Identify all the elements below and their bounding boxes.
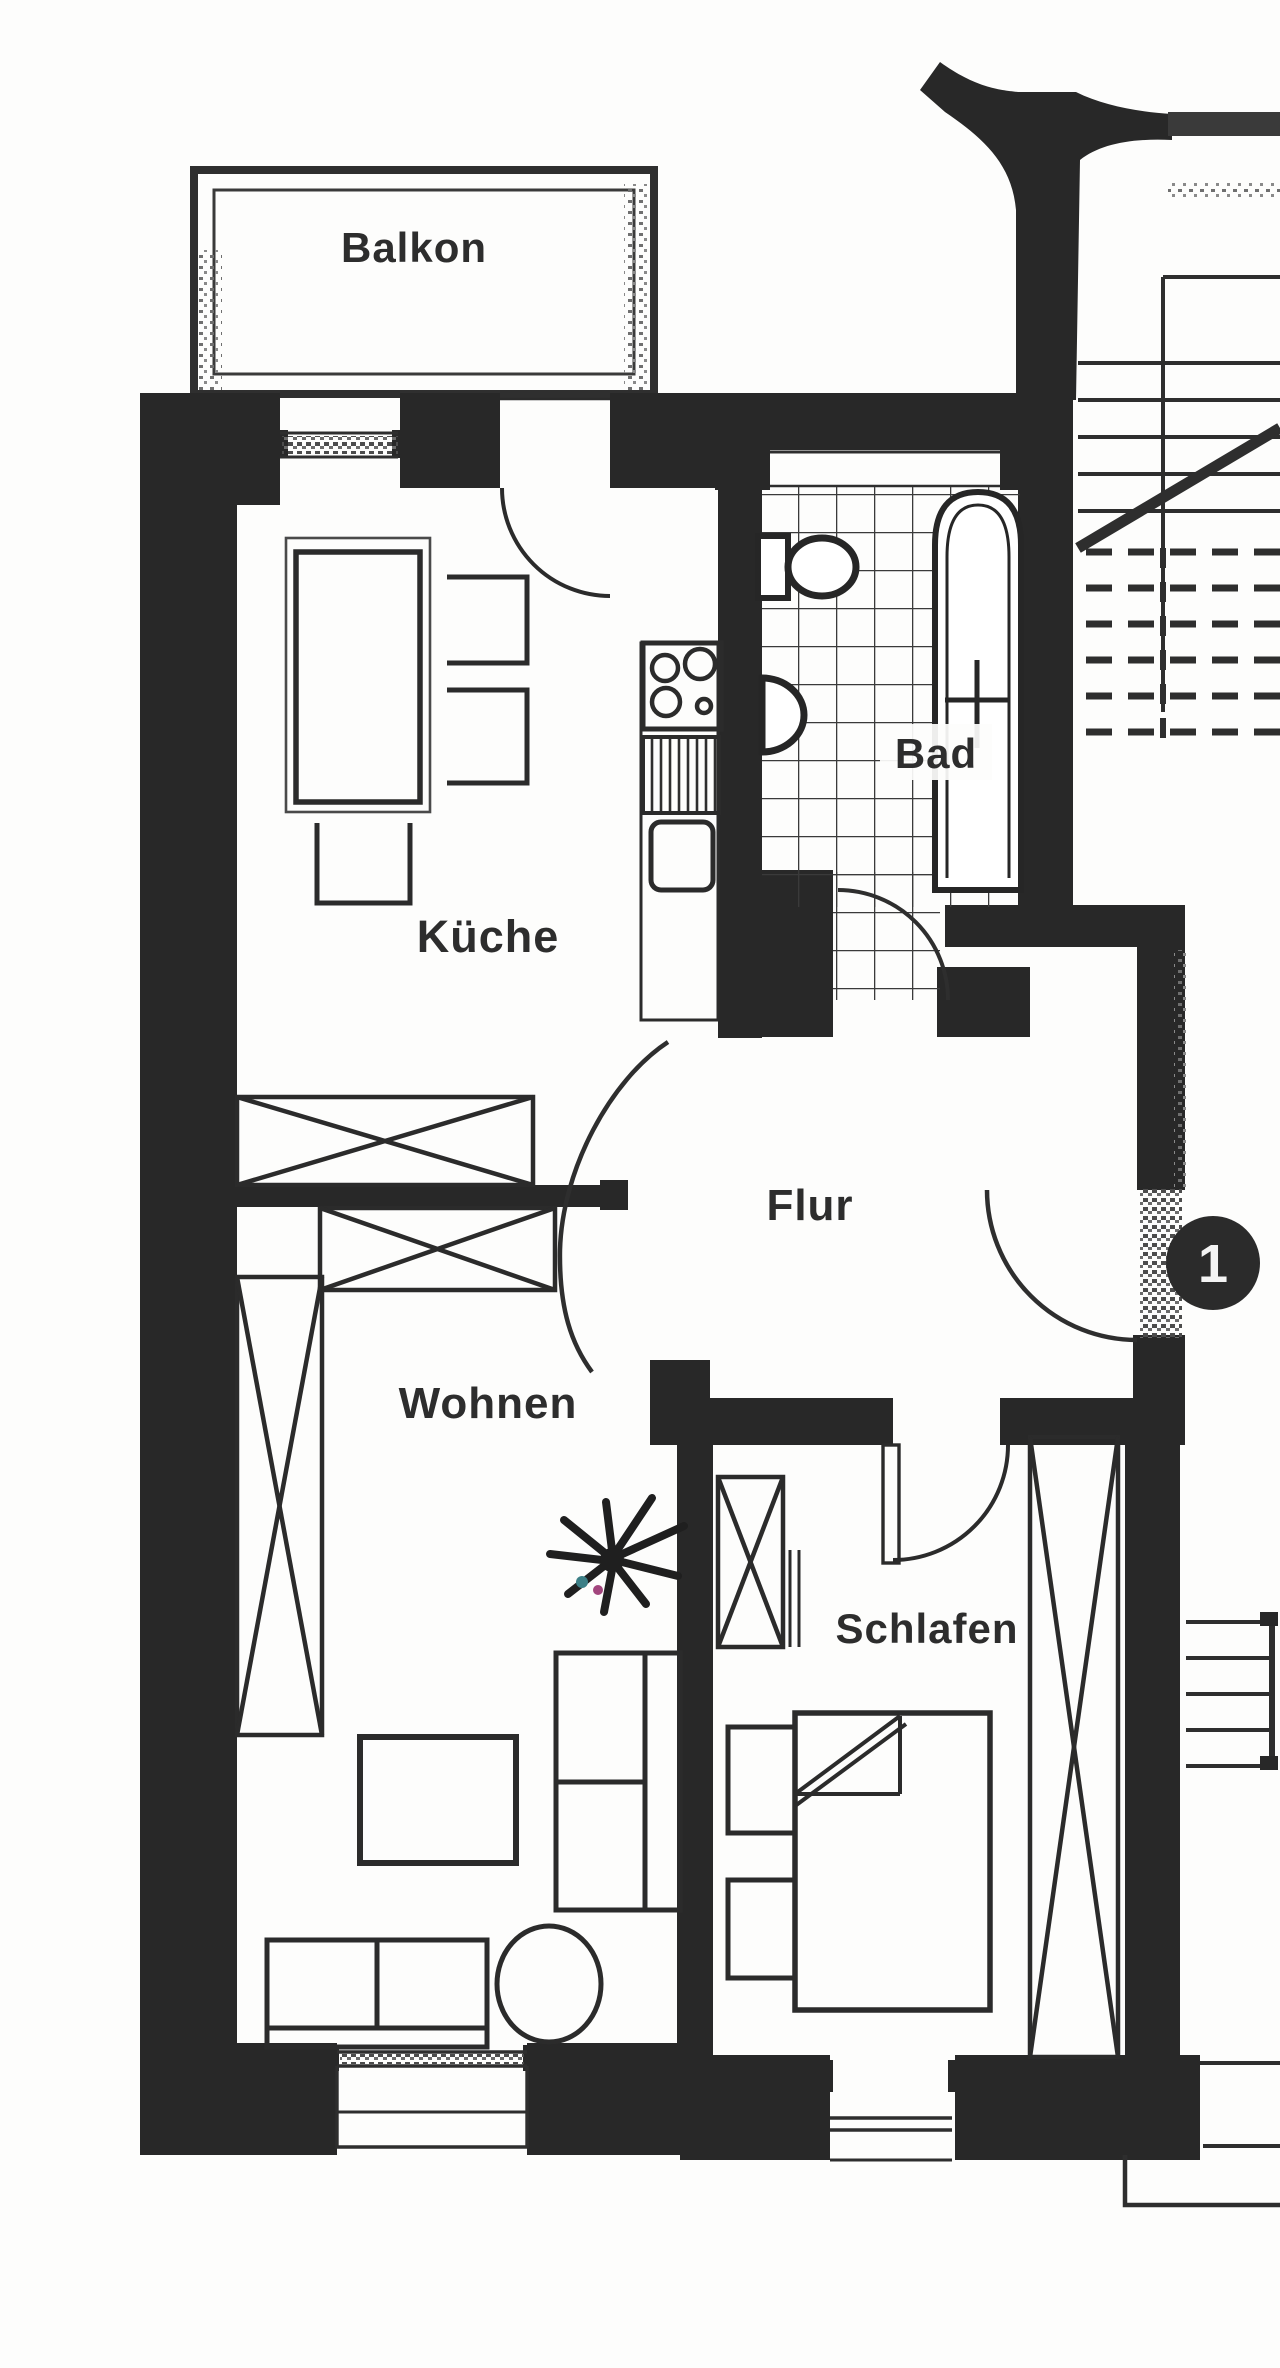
wall-bath-top <box>715 393 1020 450</box>
balcony-hatch-left <box>198 250 222 392</box>
balcony-hatch-right <box>624 184 650 390</box>
wall-top-right-building <box>1168 112 1280 136</box>
wall-flur-top <box>945 905 1185 947</box>
flur-label: Flur <box>766 1181 853 1230</box>
dishwasher-icon <box>643 737 719 813</box>
wall-bad-door-right <box>937 967 1030 1037</box>
window-kitchen <box>280 433 398 457</box>
wall-bath-top-left <box>715 450 770 490</box>
wall-bath-right <box>1018 395 1073 910</box>
wall-entry-bottom-block <box>1133 1335 1185 1403</box>
toilet-icon <box>758 536 856 598</box>
wall-bottom-mid <box>527 2043 680 2155</box>
floorplan-page: Balkon <box>0 0 1280 2368</box>
window-jamb <box>822 2060 833 2092</box>
badge-number: 1 <box>1198 1234 1228 1294</box>
radiator-nub <box>1260 1612 1278 1626</box>
radiator-nub <box>1260 1756 1278 1770</box>
wall-top-corner <box>140 393 280 505</box>
plant-speck-teal <box>576 1576 588 1588</box>
bad-label: Bad <box>895 730 977 777</box>
wall-left <box>140 490 237 2050</box>
floorplan-canvas: Balkon <box>0 0 1280 2368</box>
wall-bottom-bedroom-right <box>955 2055 1200 2160</box>
wall-kitchen-living-endcap <box>600 1180 628 1210</box>
balkon-label: Balkon <box>341 224 487 271</box>
kueche-label: Küche <box>417 911 560 962</box>
wall-top-mid <box>400 393 500 488</box>
wall-top-right-hatch <box>1168 182 1280 198</box>
bedroom-door-leaf <box>883 1445 899 1563</box>
window-bathroom <box>770 450 1000 487</box>
bathtub-icon <box>935 492 1021 890</box>
wohnen-label: Wohnen <box>399 1379 578 1428</box>
wall-flur-right-hatch <box>1174 950 1188 1188</box>
entrance-badge: 1 <box>1166 1216 1260 1310</box>
window-glazing <box>282 436 398 454</box>
wall-flur-bottom-step <box>650 1360 710 1402</box>
wall-bedroom-right <box>1125 1445 1180 2060</box>
wall-bottom-left-corner <box>140 2043 337 2155</box>
schlafen-label: Schlafen <box>835 1605 1018 1652</box>
wall-bottom-bedroom-left <box>680 2055 830 2160</box>
plant-speck-magenta <box>593 1585 603 1595</box>
window-jamb <box>948 2060 959 2092</box>
wall-top-right <box>610 393 720 488</box>
